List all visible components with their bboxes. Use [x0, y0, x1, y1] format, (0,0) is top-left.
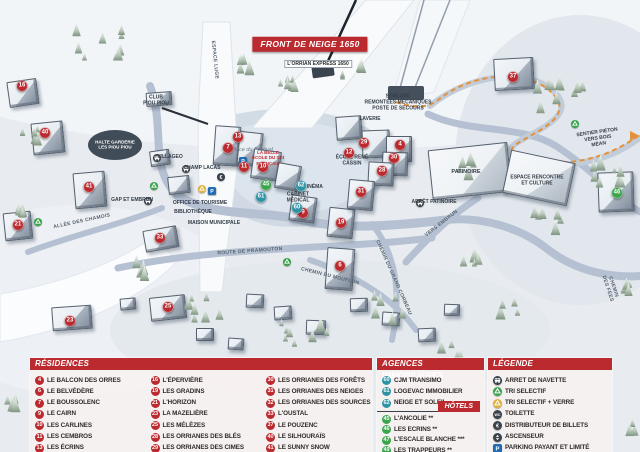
building: [335, 115, 363, 141]
legend-item-number: 41: [266, 444, 275, 452]
map-marker-62: 62: [296, 181, 307, 192]
legend-item: 32LES ORRIANES DES SOURCES: [266, 398, 370, 409]
legend-item: PPARKING PAYANT ET LIMITÉ: [493, 443, 610, 452]
park-icon: P: [493, 444, 502, 452]
panel-agences: AGENCES IMMOBILIÈRES 60CJM TRANSIMO61LOG…: [377, 358, 484, 452]
map-marker-31: 31: [356, 187, 367, 198]
legend-item-label: LE POUZENC: [278, 423, 318, 429]
legend-item-number: 6: [35, 387, 44, 396]
building: [350, 298, 368, 313]
legend-item-number: 62: [382, 399, 391, 408]
legend-item-label: TRI SELECTIF: [505, 389, 546, 395]
map-marker-7: 7: [223, 143, 234, 154]
map-marker-25: 25: [163, 302, 174, 313]
rec-icon: [571, 120, 579, 128]
map-marker-41: 41: [84, 182, 95, 193]
legend-item-label: LES ORRIANES DES FORÊTS: [278, 378, 365, 384]
legend-item-label: LES GRADINS: [163, 389, 205, 395]
legend-item: TRI SELECTIF + VERRE: [493, 398, 610, 409]
legend-item: 33L'OUSTAL: [266, 409, 370, 420]
panel-legende-title: LÉGENDE: [488, 358, 612, 370]
legend-item: 40LE SILHOURAÏS: [266, 431, 370, 442]
legend-item-number: 9: [35, 410, 44, 419]
legend-item-label: ASCENSEUR: [505, 434, 544, 440]
legend-item-label: LES ÉCRINS: [47, 445, 84, 451]
svg-text:€: €: [220, 175, 223, 181]
building: [274, 305, 293, 320]
building: [418, 328, 437, 343]
hotels-tag: HÔTELS: [438, 401, 480, 412]
legend-item-label: LE BOUSSOLENC: [47, 400, 100, 406]
legend-item-label: L'ÉPERVIÈRE: [163, 378, 203, 384]
map-marker-28: 28: [377, 166, 388, 177]
legend-item-label: LE BALCON DES ORRES: [47, 378, 121, 384]
legend-item: 11LES CEMBROS: [35, 431, 151, 442]
map-marker-13: 13: [233, 132, 244, 143]
map-marker-45: 45: [261, 180, 272, 191]
legend-item-number: 29: [151, 444, 160, 452]
panel-residences-title: RÉSIDENCES: [30, 358, 372, 370]
legend-item-number: 23: [151, 410, 160, 419]
legend-item: TRI SELECTIF: [493, 386, 610, 397]
legend-item: 47L'ESCALE BLANCHE ***: [382, 435, 482, 446]
legend-item-number: 40: [266, 433, 275, 442]
legend-item-label: ARRET DE NAVETTE: [505, 378, 566, 384]
legend-item: 16L'ÉPERVIÈRE: [151, 375, 267, 386]
map-marker-29: 29: [359, 138, 370, 149]
panel-agences-title: AGENCES IMMOBILIÈRES: [377, 358, 484, 370]
legend-item-label: PARKING PAYANT ET LIMITÉ: [505, 445, 589, 451]
legend-item-label: LES ECRINS **: [394, 427, 437, 433]
legend-item-number: 33: [266, 410, 275, 419]
rec-icon: [283, 258, 291, 266]
residences-column: 4LE BALCON DES ORRES6LE BELVÉDÈRE7LE BOU…: [35, 375, 151, 452]
residences-column: 16L'ÉPERVIÈRE19LES GRADINS21L'HORIZON23L…: [151, 375, 267, 452]
legend-item-number: 21: [151, 399, 160, 408]
map-marker-11: 11: [239, 162, 250, 173]
map-marker-33: 33: [155, 233, 166, 244]
rec-y-icon: [198, 185, 206, 193]
legend-item: 23LA MAZELIÈRE: [151, 409, 267, 420]
hotels-divider: HÔTELS: [377, 411, 478, 412]
wc-icon: WC: [493, 410, 502, 419]
building: [167, 175, 191, 195]
legend-item: 21L'HORIZON: [151, 398, 267, 409]
ski-resort-map: PP€ L'ORRIAN EXPRESS 1650SEMLORE REMONTÉ…: [0, 0, 640, 452]
legend-item-number: 19: [151, 387, 160, 396]
rec-y-icon: [493, 399, 502, 408]
legend-item-label: LES ORRIANES DES NEIGES: [278, 389, 363, 395]
legend-item: €DISTRIBUTEUR DE BILLETS: [493, 420, 610, 431]
legend-item-number: 16: [151, 376, 160, 385]
svg-text:€: €: [496, 424, 499, 430]
eur-icon: €: [493, 421, 502, 430]
legend-item: 10LES CARLINES: [35, 420, 151, 431]
legend-item-label: LES MÉLÈZES: [163, 423, 206, 429]
legend-item-number: 46: [382, 425, 391, 434]
legend-item-number: 4: [35, 376, 44, 385]
map-marker-21: 21: [13, 220, 24, 231]
legend-item: 45L'ANCOLIE **: [382, 414, 482, 425]
legend-item: 31LES ORRIANES DES NEIGES: [266, 386, 370, 397]
legend-item: ASCENSEUR: [493, 431, 610, 442]
legend-item: 13LES ÉCRINS: [35, 443, 151, 452]
map-marker-61: 61: [256, 192, 267, 203]
legend-item-number: 10: [35, 421, 44, 430]
building: [196, 328, 214, 341]
rec-icon: [150, 182, 158, 190]
legend-item: 19LES GRADINS: [151, 386, 267, 397]
legend-item-label: LES ORRIANES DES SOURCES: [278, 400, 370, 406]
map-marker-30: 30: [389, 153, 400, 164]
rec-icon: [493, 387, 502, 396]
bus-icon: [493, 376, 502, 385]
legend-item: 7LE BOUSSOLENC: [35, 398, 151, 409]
legend-item-number: 61: [382, 387, 391, 396]
map-marker-40: 40: [40, 128, 51, 139]
legend-item: 49LES TRAPPEURS **: [382, 446, 482, 452]
asc-icon: [493, 433, 502, 442]
panel-legende: LÉGENDE ARRET DE NAVETTETRI SELECTIFTRI …: [488, 358, 612, 452]
building: [246, 294, 265, 309]
legend-item: 4LE BALCON DES ORRES: [35, 375, 151, 386]
legend-item-number: 30: [266, 376, 275, 385]
legend-item-label: LES ORRIANES DES CIMES: [163, 445, 244, 451]
legend-item-label: DISTRIBUTEUR DE BILLETS: [505, 423, 588, 429]
legend-item: 25LES MÉLÈZES: [151, 420, 267, 431]
building: [120, 297, 137, 310]
legend-item: 60CJM TRANSIMO: [382, 375, 482, 386]
bus-icon: [153, 154, 161, 162]
map-marker-4: 4: [395, 140, 406, 151]
map-marker-23: 23: [65, 316, 76, 327]
legend-item: 37LE POUZENC: [266, 420, 370, 431]
legend-item-label: CJM TRANSIMO: [394, 378, 441, 384]
legend-item-number: 13: [35, 444, 44, 452]
building: [228, 337, 245, 350]
legend-item: 46LES ECRINS **: [382, 424, 482, 435]
map-marker-16: 16: [17, 81, 28, 92]
legend-item-label: LOGEVAC IMMOBILIER: [394, 389, 462, 395]
legend-item: 41LE SUNNY SNOW: [266, 443, 370, 452]
legend-item-number: 37: [266, 421, 275, 430]
legend-item: 30LES ORRIANES DES FORÊTS: [266, 375, 370, 386]
svg-text:P: P: [496, 447, 500, 452]
legend-item: WCTOILETTE: [493, 409, 610, 420]
legend-item-number: 31: [266, 387, 275, 396]
legend-item-label: TRI SELECTIF + VERRE: [505, 400, 574, 406]
legend-item: 61LOGEVAC IMMOBILIER: [382, 386, 482, 397]
map-marker-60: 60: [292, 203, 303, 214]
legend-item-number: 47: [382, 436, 391, 445]
legend-item-label: LE CAIRN: [47, 411, 76, 417]
bus-icon: [144, 197, 152, 205]
residences-column: 30LES ORRIANES DES FORÊTS31LES ORRIANES …: [266, 375, 370, 452]
building: [146, 91, 173, 107]
legend-item-label: L'OUSTAL: [278, 411, 308, 417]
legend-item-label: LA MAZELIÈRE: [163, 411, 208, 417]
legend-item: 29LES ORRIANES DES CIMES: [151, 443, 267, 452]
legend-item-label: LES CEMBROS: [47, 434, 92, 440]
map-marker-19: 19: [336, 218, 347, 229]
legend-item-label: LE SUNNY SNOW: [278, 445, 330, 451]
front-de-neige-banner: FRONT DE NEIGE 1650: [252, 37, 367, 52]
legend-item: 6LE BELVÉDÈRE: [35, 386, 151, 397]
legend-item-number: 25: [151, 421, 160, 430]
legend-item-number: 32: [266, 399, 275, 408]
map-marker-10: 10: [258, 162, 269, 173]
legend-item-label: L'ANCOLIE **: [394, 416, 433, 422]
svg-text:WC: WC: [495, 413, 501, 417]
map-marker-12: 12: [344, 148, 355, 159]
svg-text:P: P: [210, 189, 214, 195]
legend-item-label: LE SILHOURAÏS: [278, 434, 325, 440]
legend-item-label: LES ORRIANES DES BLÉS: [163, 434, 241, 440]
legend-item-number: 28: [151, 433, 160, 442]
legend-item-number: 45: [382, 415, 391, 424]
legend-item-label: TOILETTE: [505, 411, 535, 417]
legend-item: ARRET DE NAVETTE: [493, 375, 610, 386]
legend-item-number: 7: [35, 399, 44, 408]
eur-icon: €: [217, 173, 225, 181]
legend-item-label: LES TRAPPEURS **: [394, 448, 452, 452]
legend-item-number: 11: [35, 433, 44, 442]
rec-icon: [34, 218, 42, 226]
legend-item: 28LES ORRIANES DES BLÉS: [151, 431, 267, 442]
bus-icon: [182, 165, 190, 173]
panel-residences: RÉSIDENCES 4LE BALCON DES ORRES6LE BELVÉ…: [30, 358, 372, 452]
legend-item-number: 49: [382, 446, 391, 452]
building: [444, 304, 460, 317]
legend-item-number: 60: [382, 376, 391, 385]
legend-item: 9LE CAIRN: [35, 409, 151, 420]
map-marker-6: 6: [335, 261, 346, 272]
legend-item-label: L'HORIZON: [163, 400, 196, 406]
legend-item-label: LE BELVÉDÈRE: [47, 389, 94, 395]
map-marker-37: 37: [508, 72, 519, 83]
legend-item-label: LES CARLINES: [47, 423, 92, 429]
legend-item-label: L'ESCALE BLANCHE ***: [394, 437, 465, 443]
map-marker-46: 46: [612, 188, 623, 199]
park-icon: P: [208, 187, 216, 195]
bus-icon: [416, 199, 424, 207]
